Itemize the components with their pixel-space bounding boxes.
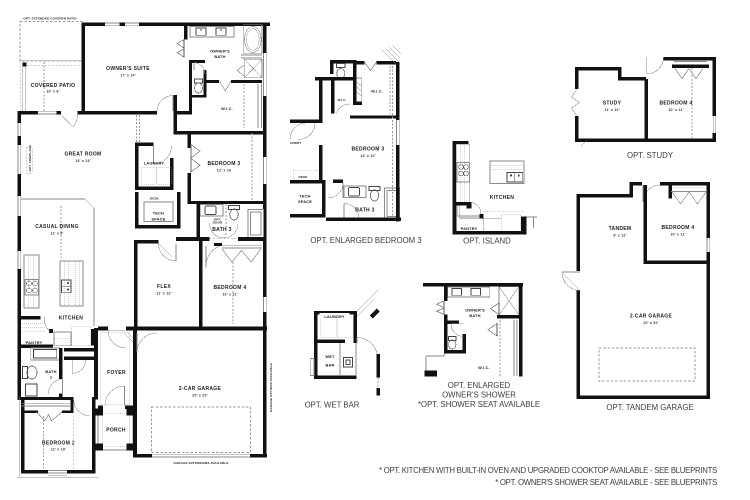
svg-text:PANTRY: PANTRY [461,226,478,231]
svg-text:2-CAR GARAGE: 2-CAR GARAGE [630,314,673,320]
svg-text:10' x 11': 10' x 11' [670,233,685,237]
svg-text:BEDROOM 3: BEDROOM 3 [208,161,241,167]
svg-text:11' x 12': 11' x 12' [604,108,619,112]
svg-text:10' x 11': 10' x 11' [668,108,683,112]
svg-text:TANDEM: TANDEM [609,226,632,232]
svg-text:12' x 10: 12' x 10 [217,169,231,173]
svg-text:OWNER'S: OWNER'S [210,49,230,54]
svg-text:10' x 11': 10' x 11' [222,293,237,297]
svg-text:BEDROOM 3: BEDROOM 3 [352,147,385,153]
svg-text:11' x 9': 11' x 9' [50,232,63,236]
svg-text:BATH 3: BATH 3 [212,227,232,233]
svg-text:PORCH: PORCH [106,428,126,434]
svg-text:TECH: TECH [299,194,310,199]
svg-text:GARAGE OPTIONS AVAILABLE: GARAGE OPTIONS AVAILABLE [269,363,273,412]
svg-text:OPT. ENLARGED: OPT. ENLARGED [448,381,511,390]
svg-text:OWNER'S: OWNER'S [465,308,485,313]
svg-text:CASUAL DINING: CASUAL DINING [35,224,79,230]
svg-text:BEDROOM 2: BEDROOM 2 [42,441,75,447]
svg-text:BATH: BATH [214,54,225,59]
svg-text:14' x 10': 14' x 10' [360,154,376,158]
svg-text:*OPT. SHOWER SEAT AVAILABLE: *OPT. SHOWER SEAT AVAILABLE [418,400,540,409]
svg-text:BEDROOM 4: BEDROOM 4 [660,101,693,107]
svg-text:OPT. TANDEM GARAGE: OPT. TANDEM GARAGE [606,403,693,412]
svg-text:OPT. FIREPLACE: OPT. FIREPLACE [28,145,32,172]
svg-text:KITCHEN: KITCHEN [490,195,514,201]
svg-text:STUDY: STUDY [603,101,622,107]
svg-text:SPACE: SPACE [151,217,165,222]
svg-text:11' x 12': 11' x 12' [156,292,171,296]
svg-text:W.I.C.: W.I.C. [371,89,383,94]
svg-text:* OPT. KITCHEN WITH BUILT-IN O: * OPT. KITCHEN WITH BUILT-IN OVEN AND UP… [379,466,717,475]
svg-text:WET: WET [325,354,335,359]
svg-text:KITCHEN: KITCHEN [59,316,83,322]
svg-text:OPT. EXTENDED COVERED PATIO: OPT. EXTENDED COVERED PATIO [23,17,77,21]
svg-text:OWNER'S SUITE: OWNER'S SUITE [106,66,150,72]
svg-text:OPT. ENLARGED BEDROOM 3: OPT. ENLARGED BEDROOM 3 [310,236,421,245]
svg-text:OPT. STUDY: OPT. STUDY [627,151,674,160]
svg-text:TECH: TECH [153,211,164,216]
svg-text:2-CAR GARAGE: 2-CAR GARAGE [179,386,222,392]
svg-text:W.I.C.: W.I.C. [478,365,490,370]
svg-text:GREAT ROOM: GREAT ROOM [64,152,101,158]
svg-text:OPT. WET BAR: OPT. WET BAR [305,401,360,410]
svg-text:20' x 20': 20' x 20' [643,321,659,325]
svg-text:17' x 14': 17' x 14' [120,74,136,78]
svg-text:BEDROOM 4: BEDROOM 4 [214,285,247,291]
svg-text:BEDROOM 4: BEDROOM 4 [662,225,695,231]
svg-text:GARAGE EXTENSIONS AVAILABLE: GARAGE EXTENSIONS AVAILABLE [173,461,228,465]
svg-text:10' x 8': 10' x 8' [46,90,59,94]
svg-text:9' x 12': 9' x 12' [613,234,626,238]
svg-text:16' x 13': 16' x 13' [75,159,91,163]
svg-text:OPT. ISLAND: OPT. ISLAND [463,237,511,246]
svg-text:COVERED PATIO: COVERED PATIO [31,83,76,89]
svg-text:20' x 20': 20' x 20' [192,394,208,398]
svg-text:BAR: BAR [325,363,334,368]
svg-text:BATH: BATH [45,369,56,374]
svg-text:UNDRY: UNDRY [290,141,302,145]
svg-text:BATH: BATH [469,313,480,318]
svg-text:* OPT. OWNER'S SHOWER SEAT AVA: * OPT. OWNER'S SHOWER SEAT AVAILABLE - S… [495,478,717,487]
svg-text:DOOR: DOOR [213,221,223,225]
svg-text:FLEX: FLEX [157,284,171,290]
svg-text:SPACE: SPACE [298,199,312,204]
svg-text:W.I.C.: W.I.C. [337,98,346,102]
svg-text:LAUNDRY: LAUNDRY [144,161,164,166]
svg-text:DESK: DESK [299,175,309,179]
svg-text:OWNER'S SHOWER: OWNER'S SHOWER [442,391,516,400]
svg-text:11' x 10': 11' x 10' [51,448,66,452]
svg-text:LAUNDRY: LAUNDRY [324,314,344,319]
svg-text:FOYER: FOYER [107,370,126,376]
svg-text:PANTRY: PANTRY [26,340,43,345]
svg-text:BATH 3: BATH 3 [355,208,375,214]
svg-text:DESK: DESK [150,197,160,201]
svg-text:W.I.C.: W.I.C. [221,106,233,111]
